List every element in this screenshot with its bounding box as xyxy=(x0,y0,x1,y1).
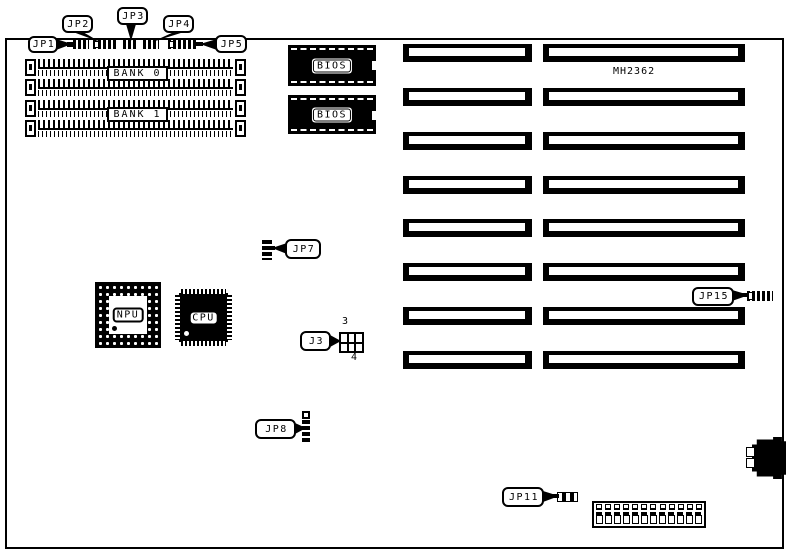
expansion-slot xyxy=(543,351,745,369)
npu-label: NPU xyxy=(113,308,144,323)
board-model-label: MH2362 xyxy=(613,66,655,77)
slot-opening xyxy=(409,311,525,319)
jumper-block-jp3 xyxy=(123,40,138,49)
slot-opening xyxy=(549,355,738,363)
callout-jp1: JP1 xyxy=(28,36,58,53)
power-pin xyxy=(623,504,629,510)
power-pin xyxy=(641,504,647,510)
expansion-slot xyxy=(543,307,745,325)
slot-opening xyxy=(409,355,525,363)
callout-jp5: JP5 xyxy=(215,35,247,53)
slot-opening xyxy=(409,267,525,275)
slot-opening xyxy=(409,136,525,144)
callout-jp3: JP3 xyxy=(117,7,148,25)
power-pin xyxy=(660,504,666,510)
keyboard-connector xyxy=(752,437,786,479)
jumper-block-jp11 xyxy=(557,492,578,502)
power-socket xyxy=(641,515,648,524)
bank0-label: BANK 0 xyxy=(107,66,168,81)
simm-end-clip xyxy=(235,59,246,76)
power-socket xyxy=(623,515,630,524)
power-pin xyxy=(687,504,693,510)
expansion-slot xyxy=(403,132,532,150)
jumper-block-jp5 xyxy=(168,40,198,49)
jumper-cell xyxy=(748,292,753,300)
slot-opening xyxy=(549,180,738,188)
callout-jp4: JP4 xyxy=(163,15,194,33)
expansion-slot xyxy=(543,88,745,106)
power-pin xyxy=(650,504,656,510)
cpu-leads-top xyxy=(181,289,226,294)
power-socket xyxy=(614,515,621,524)
callout-jp2: JP2 xyxy=(62,15,93,33)
slot-opening xyxy=(549,223,738,231)
bios-chip-1: BIOS xyxy=(288,45,376,86)
power-socket xyxy=(659,515,666,524)
j3-pin xyxy=(356,344,362,352)
power-connector-bottom-pins xyxy=(596,515,702,524)
j3-pin4-label: 4 xyxy=(351,352,357,363)
callout-j3: J3 xyxy=(300,331,331,351)
power-pin xyxy=(669,504,675,510)
cpu-leads-right xyxy=(227,295,232,340)
simm-end-clip xyxy=(25,79,36,96)
bios-pin-row xyxy=(291,81,373,83)
motherboard-diagram: BANK 0 BANK 1 BIOS BIOS MH2362 NPU CPU xyxy=(0,0,791,556)
jumper-block-jp4 xyxy=(143,40,159,49)
bios-pin-row xyxy=(291,129,373,131)
expansion-slot xyxy=(543,263,745,281)
jumper-block-j3 xyxy=(339,332,364,353)
power-pin xyxy=(605,504,611,510)
cpu-label: CPU xyxy=(189,311,218,324)
jumper-block-jp15 xyxy=(747,291,773,301)
jp8-body xyxy=(302,420,310,442)
jumper-block-jp8 xyxy=(301,411,311,442)
power-socket xyxy=(596,515,603,524)
expansion-slot xyxy=(543,132,745,150)
j3-pin3-label: 3 xyxy=(342,316,348,327)
simm-end-clip xyxy=(235,79,246,96)
bios-notch xyxy=(372,111,378,120)
power-pin xyxy=(596,504,602,510)
bios-chip-2: BIOS xyxy=(288,95,376,134)
cpu-leads-bottom xyxy=(181,341,226,346)
expansion-slot xyxy=(403,307,532,325)
simm-end-clip xyxy=(235,100,246,117)
callout-jp11: JP11 xyxy=(502,487,544,507)
jumper-cell xyxy=(94,41,99,48)
power-socket xyxy=(677,515,684,524)
power-socket xyxy=(650,515,657,524)
power-pin xyxy=(614,504,620,510)
power-socket xyxy=(605,515,612,524)
jumper-block-jp7 xyxy=(262,240,272,260)
expansion-slot xyxy=(403,351,532,369)
expansion-slot xyxy=(403,44,532,62)
simm-socket-row xyxy=(25,79,246,96)
slot-opening xyxy=(549,267,738,275)
simm-end-clip xyxy=(235,120,246,137)
power-pin xyxy=(696,504,702,510)
callout-jp7: JP7 xyxy=(285,239,321,259)
npu-socket: NPU xyxy=(95,282,161,348)
npu-pin1-dot xyxy=(112,326,117,331)
power-socket xyxy=(686,515,693,524)
simm-end-clip xyxy=(25,100,36,117)
bank1-label: BANK 1 xyxy=(107,107,168,122)
bios-label: BIOS xyxy=(312,107,352,122)
keyboard-connector-pin xyxy=(746,458,755,468)
slot-opening xyxy=(549,48,738,56)
jumper-block-jp2 xyxy=(93,40,118,49)
simm-pins xyxy=(38,79,233,96)
slot-opening xyxy=(549,311,738,319)
jumper-cell xyxy=(169,41,174,48)
simm-socket-row xyxy=(25,120,246,137)
expansion-slot xyxy=(403,263,532,281)
callout-jp15: JP15 xyxy=(692,287,734,306)
keyboard-connector-pin xyxy=(746,447,755,457)
power-socket xyxy=(695,515,702,524)
expansion-slot xyxy=(403,88,532,106)
j3-pin xyxy=(341,334,347,342)
expansion-slot xyxy=(403,176,532,194)
expansion-slot xyxy=(543,44,745,62)
slot-opening xyxy=(549,92,738,100)
jp8-top-cell xyxy=(302,411,310,419)
power-socket xyxy=(668,515,675,524)
power-pin xyxy=(678,504,684,510)
jumper-block-jp1 xyxy=(73,40,89,49)
slot-opening xyxy=(409,48,525,56)
cpu-pin1-dot xyxy=(184,331,189,336)
bios-pin-row xyxy=(291,98,373,100)
power-pin xyxy=(632,504,638,510)
slot-opening xyxy=(549,136,738,144)
j3-pin xyxy=(356,334,362,342)
expansion-slot xyxy=(543,219,745,237)
cpu-chip: CPU xyxy=(175,289,232,346)
bios-label: BIOS xyxy=(312,58,352,73)
bios-notch xyxy=(372,61,378,70)
simm-end-clip xyxy=(25,59,36,76)
power-socket xyxy=(632,515,639,524)
slot-opening xyxy=(409,223,525,231)
j3-pin xyxy=(349,344,355,352)
simm-end-clip xyxy=(25,120,36,137)
j3-pin xyxy=(341,344,347,352)
expansion-slot xyxy=(403,219,532,237)
cpu-leads-left xyxy=(175,295,180,340)
slot-opening xyxy=(409,92,525,100)
bios-pin-row xyxy=(291,48,373,50)
simm-pins xyxy=(38,120,233,137)
power-connector-top-pins xyxy=(596,504,702,510)
power-connector xyxy=(592,501,706,528)
callout-jp8: JP8 xyxy=(255,419,296,439)
j3-pin xyxy=(349,334,355,342)
slot-opening xyxy=(409,180,525,188)
expansion-slot xyxy=(543,176,745,194)
